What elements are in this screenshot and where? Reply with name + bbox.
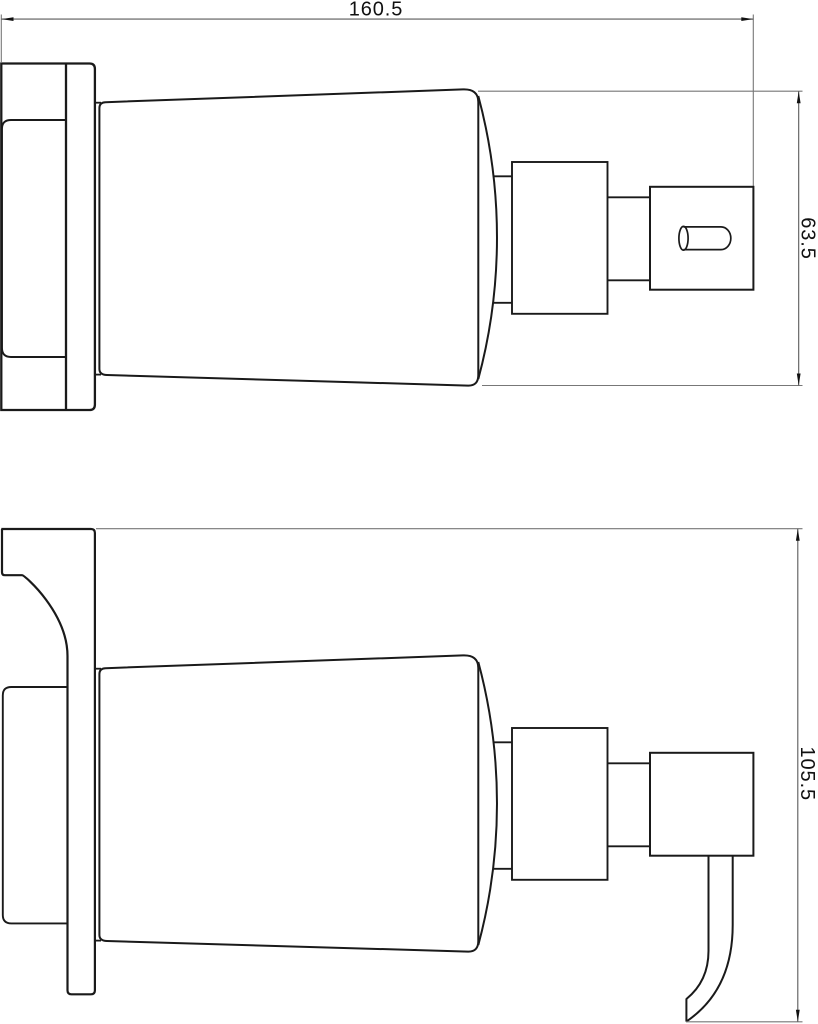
svg-text:160.5: 160.5 (349, 0, 404, 20)
svg-text:63.5: 63.5 (796, 217, 818, 260)
svg-text:105.5: 105.5 (796, 747, 818, 802)
